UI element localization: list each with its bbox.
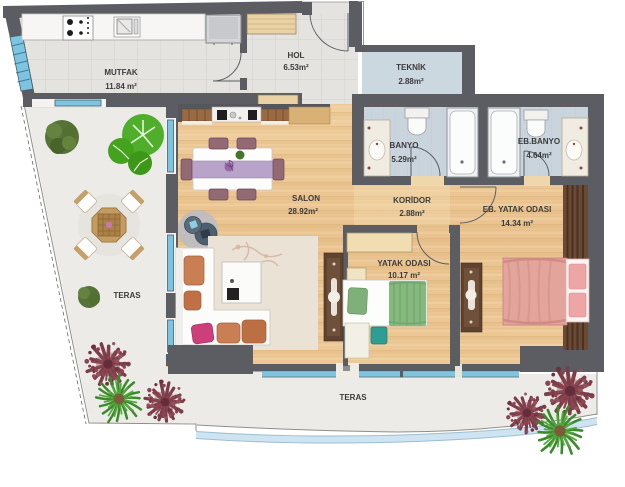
svg-text:EB.BANYO: EB.BANYO	[518, 137, 560, 146]
svg-text:TERAS: TERAS	[113, 291, 141, 300]
svg-text:10.17 m²: 10.17 m²	[388, 271, 420, 280]
svg-text:YATAK ODASI: YATAK ODASI	[377, 259, 430, 268]
svg-text:TERAS: TERAS	[339, 393, 367, 402]
svg-text:4.64m²: 4.64m²	[526, 151, 552, 160]
svg-text:5.29m²: 5.29m²	[391, 155, 417, 164]
svg-text:2.88m²: 2.88m²	[398, 77, 424, 86]
svg-text:2.88m²: 2.88m²	[399, 209, 425, 218]
svg-text:14.34 m²: 14.34 m²	[501, 219, 533, 228]
svg-text:TEKNİK: TEKNİK	[396, 63, 426, 72]
svg-text:SALON: SALON	[292, 194, 320, 203]
svg-text:11.84 m²: 11.84 m²	[105, 82, 137, 91]
svg-text:EB. YATAK ODASI: EB. YATAK ODASI	[483, 205, 552, 214]
svg-text:HOL: HOL	[288, 51, 305, 60]
svg-text:BANYO: BANYO	[390, 141, 419, 150]
svg-text:6.53m²: 6.53m²	[283, 63, 309, 72]
svg-text:28.92m²: 28.92m²	[288, 207, 318, 216]
svg-text:MUTFAK: MUTFAK	[104, 68, 138, 77]
svg-text:KORİDOR: KORİDOR	[393, 196, 431, 205]
